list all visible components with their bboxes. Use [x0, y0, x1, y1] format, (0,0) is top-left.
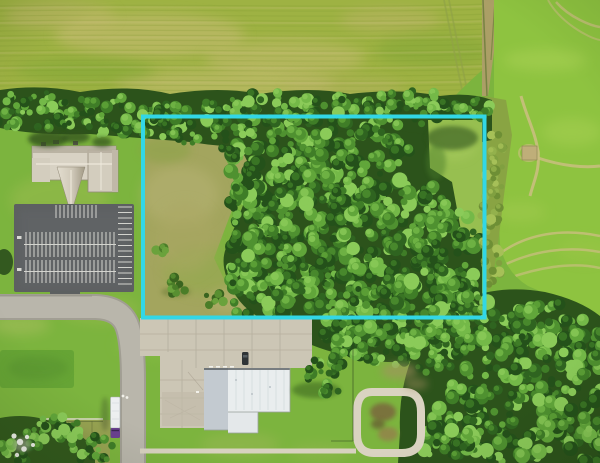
aerial-listing-photo	[0, 0, 600, 463]
aerial-photo-canvas	[0, 0, 600, 463]
photo-vignette	[0, 0, 600, 463]
